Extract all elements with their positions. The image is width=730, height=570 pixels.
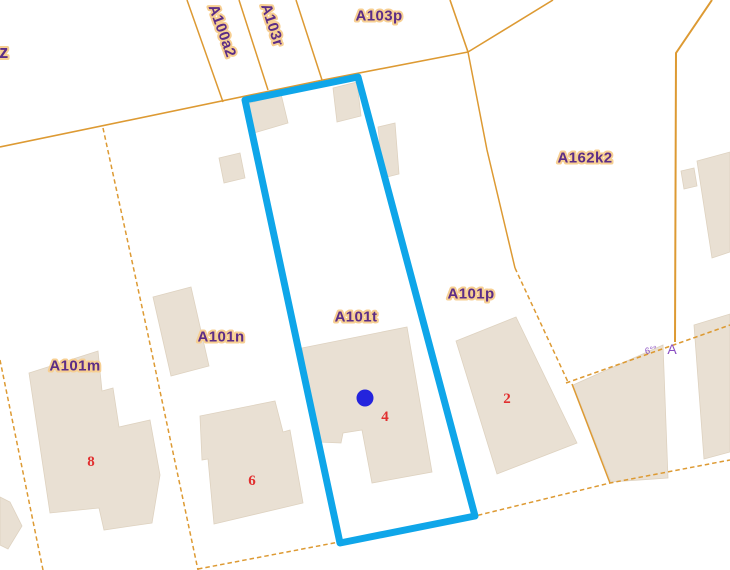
parcel-label-A101m[interactable]: A101m xyxy=(49,358,100,375)
house-number-4: 4 xyxy=(381,409,389,425)
parcel-label-A103r[interactable]: A103r xyxy=(257,2,287,49)
house-number-8: 8 xyxy=(87,454,95,470)
building-footprint[interactable] xyxy=(697,152,730,258)
map-viewport[interactable]: zA100a2A103rA103pA162k2A101pA101tA101nA1… xyxy=(0,0,730,570)
parcel-label-A101n[interactable]: A101n xyxy=(197,329,244,346)
parcel-boundary-line xyxy=(296,0,322,80)
house-number-6: 6 xyxy=(248,473,256,489)
parcel-label-A103p[interactable]: A103p xyxy=(355,8,402,25)
selected-parcel-marker xyxy=(357,390,374,407)
building-footprint[interactable] xyxy=(0,497,22,549)
house-number-2: 2 xyxy=(503,391,511,407)
building-footprint[interactable] xyxy=(694,314,730,459)
parcel-boundary-line xyxy=(468,52,515,268)
parcel-label-z[interactable]: z xyxy=(0,42,9,62)
parcel-boundary-line xyxy=(0,52,468,147)
parcel-label-A101p[interactable]: A101p xyxy=(447,286,494,303)
parcel-boundary-line xyxy=(450,0,468,52)
building-footprint[interactable] xyxy=(681,168,697,189)
parcel-label-A162k2[interactable]: A162k2 xyxy=(558,150,613,167)
building-footprint[interactable] xyxy=(219,153,245,183)
boundary-annotation: A xyxy=(667,341,677,357)
building-footprint[interactable] xyxy=(200,401,303,524)
parcel-label-A100a2[interactable]: A100a2 xyxy=(205,2,240,59)
building-footprint[interactable] xyxy=(29,351,160,530)
parcel-boundary-line xyxy=(468,0,553,52)
map-canvas[interactable]: zA100a2A103rA103pA162k2A101pA101tA101nA1… xyxy=(0,0,730,570)
parcel-label-A101t[interactable]: A101t xyxy=(335,309,378,326)
building-footprint[interactable] xyxy=(573,345,668,482)
building-footprint[interactable] xyxy=(456,317,577,474)
building-footprint[interactable] xyxy=(333,82,361,122)
